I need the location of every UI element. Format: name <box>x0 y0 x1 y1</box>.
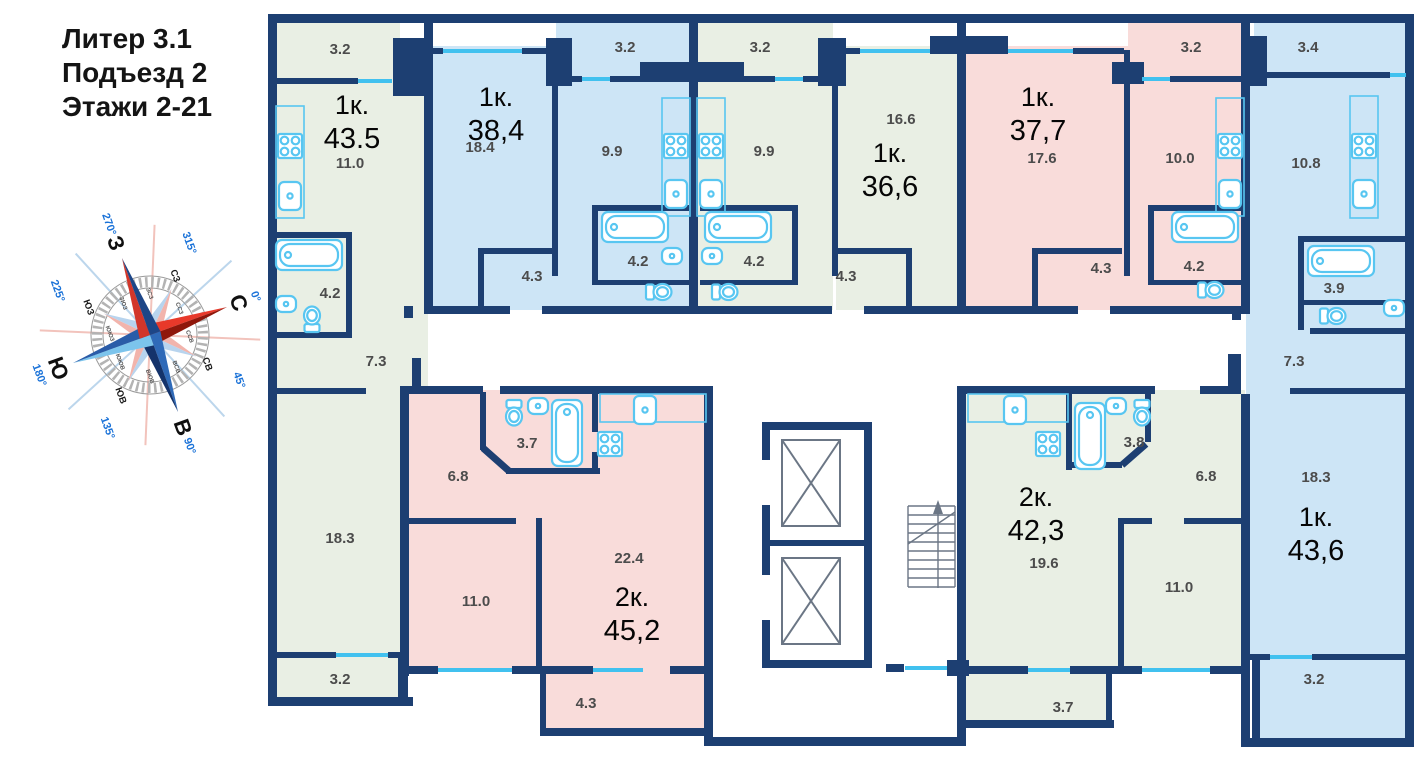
room-label: 4.3 <box>836 268 857 285</box>
stove-icon <box>1218 134 1242 158</box>
svg-text:315°: 315° <box>179 230 198 255</box>
room-label: 4.2 <box>744 253 765 270</box>
kitchen-sink-icon <box>665 180 687 208</box>
room-label: 7.3 <box>366 353 387 370</box>
room-label: 3.2 <box>615 39 636 56</box>
toilet-icon <box>646 284 672 300</box>
header-entrance: Подъезд 2 <box>62 57 207 88</box>
room-label: 7.3 <box>1284 353 1305 370</box>
svg-text:ЗЮЗ: ЗЮЗ <box>117 296 127 311</box>
bathroom-sink-icon <box>1106 398 1126 414</box>
svg-text:43.5: 43.5 <box>324 123 380 155</box>
room-label: 3.2 <box>1181 39 1202 56</box>
bathtub-icon <box>705 212 771 242</box>
svg-text:45,2: 45,2 <box>604 615 660 647</box>
room-label: 19.6 <box>1029 555 1058 572</box>
staircase <box>908 500 955 588</box>
room-label: 6.8 <box>448 468 469 485</box>
svg-text:90°: 90° <box>181 436 198 456</box>
room-label: 3.2 <box>330 671 351 688</box>
bathtub-icon <box>1075 403 1105 469</box>
room-label: 3.2 <box>750 39 771 56</box>
svg-text:1к.: 1к. <box>1021 82 1055 112</box>
kitchen-sink-icon <box>279 182 301 210</box>
bathtub-icon <box>552 400 582 466</box>
compass-east-label: В <box>169 416 198 439</box>
stove-icon <box>664 134 688 158</box>
svg-text:270°: 270° <box>99 212 118 237</box>
stove-icon <box>699 134 723 158</box>
svg-text:43,6: 43,6 <box>1288 535 1344 567</box>
room-label: 4.3 <box>522 268 543 285</box>
svg-text:36,6: 36,6 <box>862 171 918 203</box>
svg-text:1к.: 1к. <box>335 90 369 120</box>
svg-text:1к.: 1к. <box>1299 502 1333 532</box>
room-label: 10.8 <box>1291 155 1320 172</box>
room-label: 22.4 <box>614 550 644 567</box>
svg-text:225°: 225° <box>48 278 67 303</box>
room-label: 10.0 <box>1165 150 1194 167</box>
room-label: 3.9 <box>1324 280 1345 297</box>
svg-text:42,3: 42,3 <box>1008 515 1064 547</box>
stove-icon <box>1036 432 1060 456</box>
room-label: 3.4 <box>1298 39 1320 56</box>
room-label: 3.2 <box>1304 671 1325 688</box>
room-label: 9.9 <box>602 143 623 160</box>
kitchen-sink-icon <box>1004 396 1026 424</box>
room-label: 17.6 <box>1027 150 1056 167</box>
compass-sw-label: ЮЗ <box>80 298 96 317</box>
header: Литер 3.1 Подъезд 2 Этажи 2-21 <box>62 23 212 122</box>
room-label: 4.2 <box>1184 258 1205 275</box>
room-label: 18.3 <box>1301 469 1330 486</box>
stairs-arrow-head <box>933 500 943 514</box>
bathroom-sink-icon <box>662 248 682 264</box>
room-label: 4.2 <box>628 253 649 270</box>
compass-ne-label: СВ <box>199 356 214 373</box>
bathtub-icon <box>602 212 668 242</box>
bathtub-icon <box>276 240 342 270</box>
svg-text:1к.: 1к. <box>479 82 513 112</box>
compass-nw-label: СЗ <box>167 268 182 284</box>
kitchen-sink-icon <box>634 396 656 424</box>
room-label: 11.0 <box>1165 579 1193 596</box>
stove-icon <box>598 432 622 456</box>
bathtub-icon <box>1308 246 1374 276</box>
room-label: 9.9 <box>754 143 775 160</box>
toilet-icon <box>1134 400 1150 426</box>
kitchen-sink-icon <box>1219 180 1241 208</box>
bathtub-icon <box>1172 212 1238 242</box>
bathroom-sink-icon <box>276 296 296 312</box>
svg-text:45°: 45° <box>230 370 247 390</box>
room-label: 3.7 <box>1053 699 1074 716</box>
kitchen-sink-icon <box>700 180 722 208</box>
room-label: 3.7 <box>517 435 538 452</box>
svg-text:37,7: 37,7 <box>1010 115 1066 147</box>
room-label: 4.3 <box>576 695 597 712</box>
floorplan-page: Литер 3.1 Подъезд 2 Этажи 2-21 <box>0 0 1416 758</box>
room-label: 3.2 <box>330 41 351 58</box>
room-label: 18.3 <box>325 530 354 547</box>
stove-icon <box>278 134 302 158</box>
room-label: 3.8 <box>1124 434 1145 451</box>
toilet-icon <box>1320 308 1346 324</box>
room-label: 4.3 <box>1091 260 1112 277</box>
compass-rose: ССЗ ССВ ВСВ ВЮВ ЮЮВ ЮЮЗ ЗЮЗ ЗСЗ С В Ю З … <box>0 173 304 496</box>
toilet-icon <box>304 307 320 333</box>
compass-main-points <box>45 230 255 440</box>
bathroom-sink-icon <box>702 248 722 264</box>
svg-text:1к.: 1к. <box>873 138 907 168</box>
svg-text:2к.: 2к. <box>1019 482 1053 512</box>
svg-text:ССЗ: ССЗ <box>174 302 184 316</box>
apartment-5-region[interactable] <box>1246 20 1408 740</box>
toilet-icon <box>712 284 738 300</box>
bathroom-sink-icon <box>1384 300 1404 316</box>
kitchen-sink-icon <box>1353 180 1375 208</box>
svg-text:135°: 135° <box>98 415 117 440</box>
elevator-shaft-1 <box>782 440 840 526</box>
svg-text:ВЮВ: ВЮВ <box>144 369 155 386</box>
room-label: 11.0 <box>336 155 364 172</box>
floorplan-drawing: Литер 3.1 Подъезд 2 Этажи 2-21 <box>0 0 1416 758</box>
room-label: 11.0 <box>462 593 490 610</box>
stove-icon <box>1352 134 1376 158</box>
room-label: 6.8 <box>1196 468 1217 485</box>
bathroom-sink-icon <box>528 398 548 414</box>
toilet-icon <box>1198 282 1224 298</box>
room-label: 18.4 <box>465 139 495 156</box>
header-building: Литер 3.1 <box>62 23 192 54</box>
svg-text:ВСВ: ВСВ <box>171 360 181 375</box>
room-label: 4.2 <box>320 285 341 302</box>
elevator-shaft-2 <box>782 558 840 644</box>
toilet-icon <box>506 400 522 426</box>
svg-text:2к.: 2к. <box>615 582 649 612</box>
room-label: 16.6 <box>886 111 915 128</box>
header-floors: Этажи 2-21 <box>62 91 212 122</box>
compass-west-label: З <box>102 232 130 254</box>
